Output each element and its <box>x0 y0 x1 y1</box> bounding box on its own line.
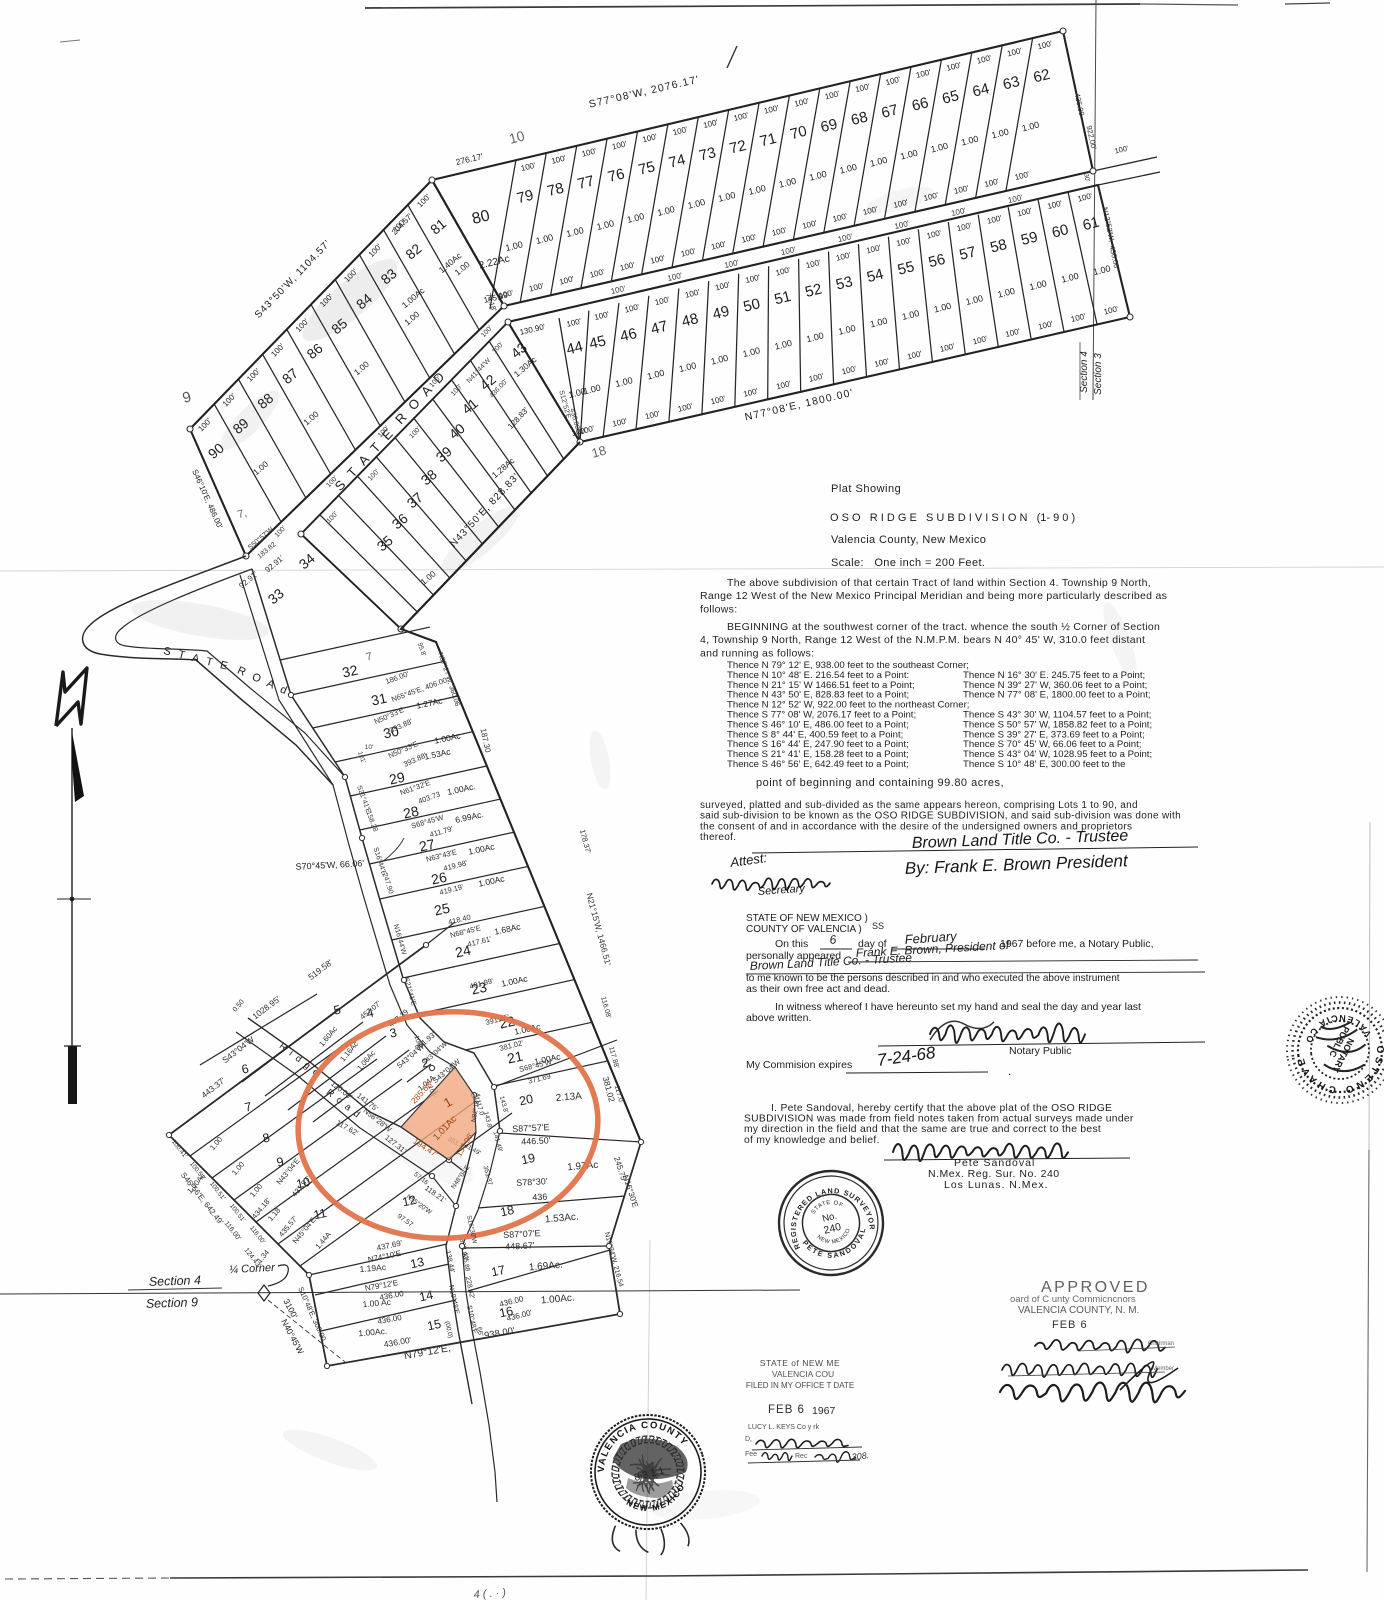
svg-text:10': 10' <box>365 744 373 751</box>
svg-text:SS: SS <box>872 921 884 931</box>
svg-text:VALENCIA COU: VALENCIA COU <box>772 1369 834 1379</box>
svg-text:Member: Member <box>1152 1366 1174 1372</box>
svg-text:S87°57'E: S87°57'E <box>512 1122 550 1134</box>
svg-text:Thence N 16° 30' E. 245.75 f: Thence N 16° 30' E. 245.75 feet to a Poi… <box>963 660 1152 770</box>
svg-text:FILED IN MY OFFICE T DATE: FILED IN MY OFFICE T DATE <box>746 1381 854 1390</box>
svg-text:17: 17 <box>490 1263 507 1280</box>
svg-text:4 ( . · ): 4 ( . · ) <box>473 1587 506 1600</box>
svg-text:S78°30': S78°30' <box>516 1176 548 1188</box>
svg-text:FEB 6: FEB 6 <box>768 1404 805 1416</box>
svg-text:point of beginning and contain: point of beginning and containing 99.80 … <box>756 777 1004 789</box>
svg-text:446.50': 446.50' <box>521 1135 551 1147</box>
svg-text:15: 15 <box>426 1317 443 1334</box>
svg-text:STATE of NEW ME: STATE of NEW ME <box>760 1358 840 1368</box>
svg-text:LUCY L. KEYS Co y rk: LUCY L. KEYS Co y rk <box>748 1424 820 1431</box>
svg-text:19: 19 <box>520 1151 537 1168</box>
svg-text:above written.: above written. <box>746 1012 811 1024</box>
svg-text:Los Lunas. N.Mex.: Los Lunas. N.Mex. <box>944 1179 1049 1191</box>
svg-text:Valencia County, New Mexico: Valencia County, New Mexico <box>831 534 986 546</box>
svg-text:oard of C unty Commicncnors: oard of C unty Commicncnors <box>1010 1294 1136 1305</box>
svg-text:Section 4: Section 4 <box>149 1273 202 1289</box>
svg-text:Rec: Rec <box>795 1453 808 1460</box>
svg-text:Section 3: Section 3 <box>1093 353 1104 395</box>
svg-text:¼ Corner: ¼ Corner <box>229 1262 277 1276</box>
svg-text:Chairman: Chairman <box>1148 1341 1174 1347</box>
svg-text:My Commision expires: My Commision expires <box>746 1059 852 1071</box>
svg-text:1967: 1967 <box>812 1405 836 1417</box>
svg-text:STATE OF NEW MEXICO ): STATE OF NEW MEXICO ) <box>746 913 868 924</box>
svg-text:1967 before me, a Notary Publi: 1967 before me, a Notary Public, <box>1000 938 1154 950</box>
svg-text:Section 4: Section 4 <box>1079 351 1090 393</box>
svg-text:436: 436 <box>532 1192 548 1203</box>
svg-text:In witness whereof I have here: In witness whereof I have hereunto set m… <box>775 1001 1141 1013</box>
svg-text:D,: D, <box>745 1436 752 1443</box>
svg-text:448.67': 448.67' <box>505 1240 535 1252</box>
svg-text:Scale: One inch = 200 Feet.: Scale: One inch = 200 Feet. <box>831 557 985 569</box>
svg-text:18: 18 <box>499 1203 516 1220</box>
svg-text:as their own free act and dead: as their own free act and dead. <box>746 983 890 995</box>
svg-text:.: . <box>1008 1064 1011 1078</box>
svg-text:13: 13 <box>409 1255 426 1272</box>
svg-text:Notary Public: Notary Public <box>1009 1045 1071 1057</box>
svg-text:2.13A: 2.13A <box>555 1091 582 1104</box>
svg-text:20: 20 <box>518 1092 535 1109</box>
svg-text:Section 9: Section 9 <box>146 1295 199 1311</box>
svg-text:On this: On this <box>775 938 808 950</box>
svg-text:Fee: Fee <box>745 1451 757 1458</box>
svg-text:VALENCIA COUNTY, N. M.: VALENCIA COUNTY, N. M. <box>1018 1305 1139 1316</box>
svg-text:S87°07'E: S87°07'E <box>503 1228 541 1240</box>
svg-text:FEB 6: FEB 6 <box>1052 1319 1088 1331</box>
svg-text:14: 14 <box>418 1288 435 1305</box>
svg-text:O S O R I D G E S U B D I: O S O R I D G E S U B D I V I S I O N (1… <box>830 512 1075 524</box>
svg-text:Plat Showing: Plat Showing <box>831 483 901 495</box>
svg-text:COUNTY OF VALENCIA ): COUNTY OF VALENCIA ) <box>746 924 862 935</box>
